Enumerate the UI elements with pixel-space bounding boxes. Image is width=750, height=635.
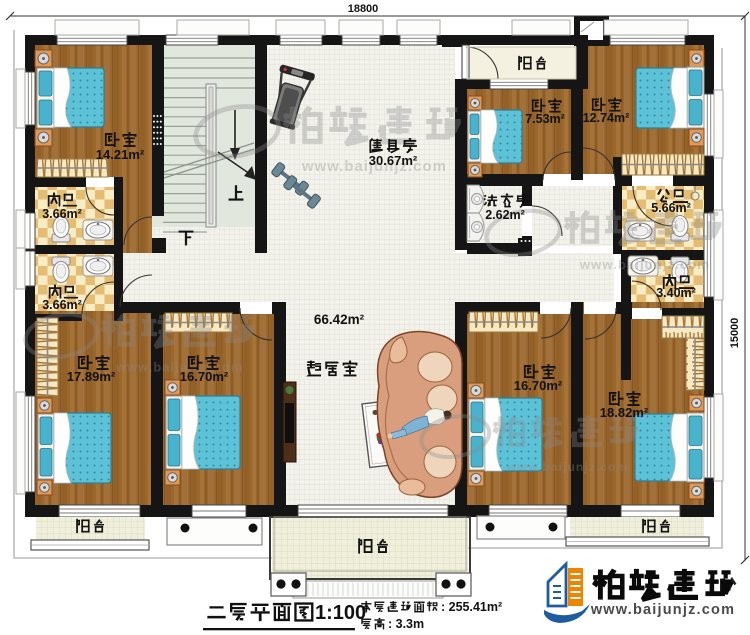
svg-text:: 255.41m²: : 255.41m²: [441, 600, 502, 614]
svg-text:16.70m²: 16.70m²: [180, 369, 229, 384]
svg-text:14.21m²: 14.21m²: [96, 147, 145, 162]
svg-text:3.66m²: 3.66m²: [42, 207, 82, 221]
svg-text:3.66m²: 3.66m²: [42, 298, 82, 312]
svg-text:7.53m²: 7.53m²: [525, 112, 565, 126]
svg-text:30.67m²: 30.67m²: [369, 153, 418, 168]
svg-text:www.baijunjz.com: www.baijunjz.com: [579, 257, 710, 272]
svg-text:www.baijunjz.com: www.baijunjz.com: [506, 460, 629, 474]
svg-text:1:100: 1:100: [315, 602, 366, 624]
svg-text:17.89m²: 17.89m²: [67, 369, 116, 384]
svg-text:2.62m²: 2.62m²: [485, 208, 525, 222]
svg-text:15000: 15000: [729, 318, 741, 349]
svg-text:66.42m²: 66.42m²: [314, 312, 365, 327]
svg-text:18800: 18800: [348, 3, 379, 15]
svg-text:: 3.3m: : 3.3m: [388, 617, 424, 631]
svg-text:16.70m²: 16.70m²: [514, 378, 563, 393]
svg-text:12.74m²: 12.74m²: [583, 111, 630, 125]
svg-text:3.40m²: 3.40m²: [656, 286, 696, 300]
svg-text:5.66m²: 5.66m²: [651, 201, 691, 215]
svg-text:18.82m²: 18.82m²: [600, 405, 649, 420]
svg-text:www.baijunjz.com: www.baijunjz.com: [590, 602, 735, 618]
